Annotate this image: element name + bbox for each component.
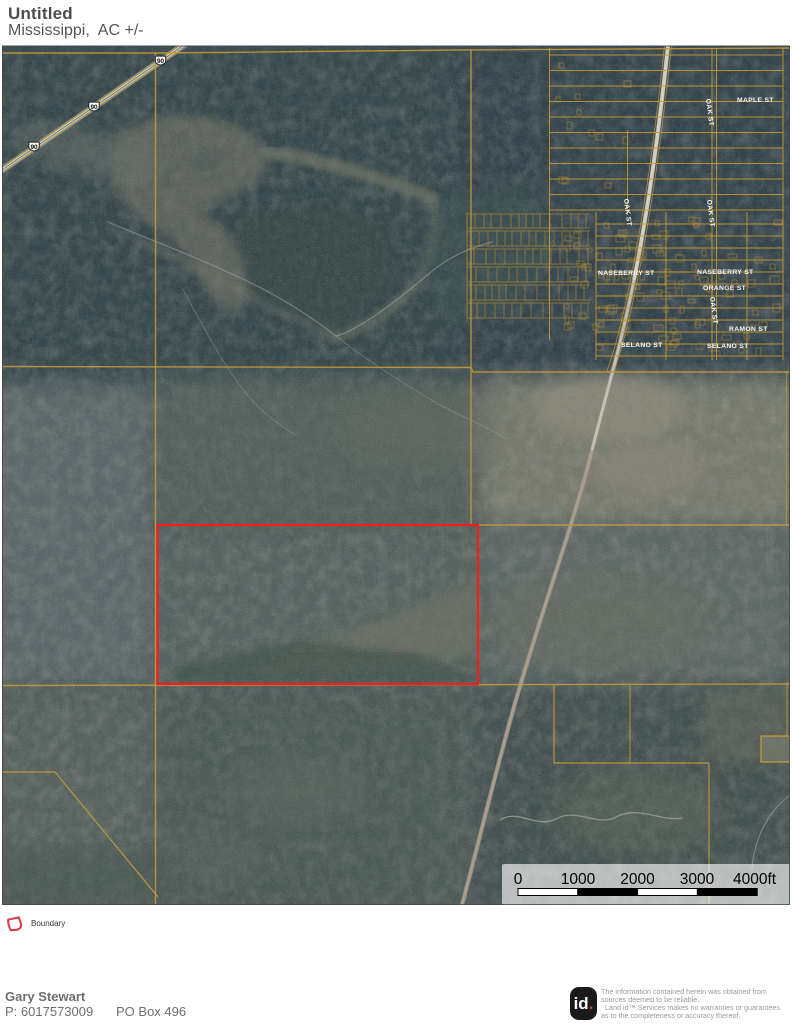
svg-text:RAMON ST: RAMON ST <box>729 326 768 333</box>
svg-text:NASEBERRY ST: NASEBERRY ST <box>598 270 655 277</box>
svg-text:90: 90 <box>157 58 165 65</box>
svg-text:90: 90 <box>90 104 98 111</box>
svg-text:4000ft: 4000ft <box>733 871 777 888</box>
svg-text:ORANGE ST: ORANGE ST <box>703 285 747 292</box>
svg-text:0: 0 <box>514 871 523 888</box>
svg-text:3000: 3000 <box>680 871 715 888</box>
svg-text:2000: 2000 <box>620 871 655 888</box>
svg-text:90: 90 <box>30 144 38 151</box>
svg-text:NASEBERRY ST: NASEBERRY ST <box>697 269 754 276</box>
svg-text:SELANO ST: SELANO ST <box>621 342 663 349</box>
svg-text:SELANO ST: SELANO ST <box>707 343 749 350</box>
svg-text:MAPLE ST: MAPLE ST <box>737 97 774 104</box>
svg-text:1000: 1000 <box>561 871 596 888</box>
